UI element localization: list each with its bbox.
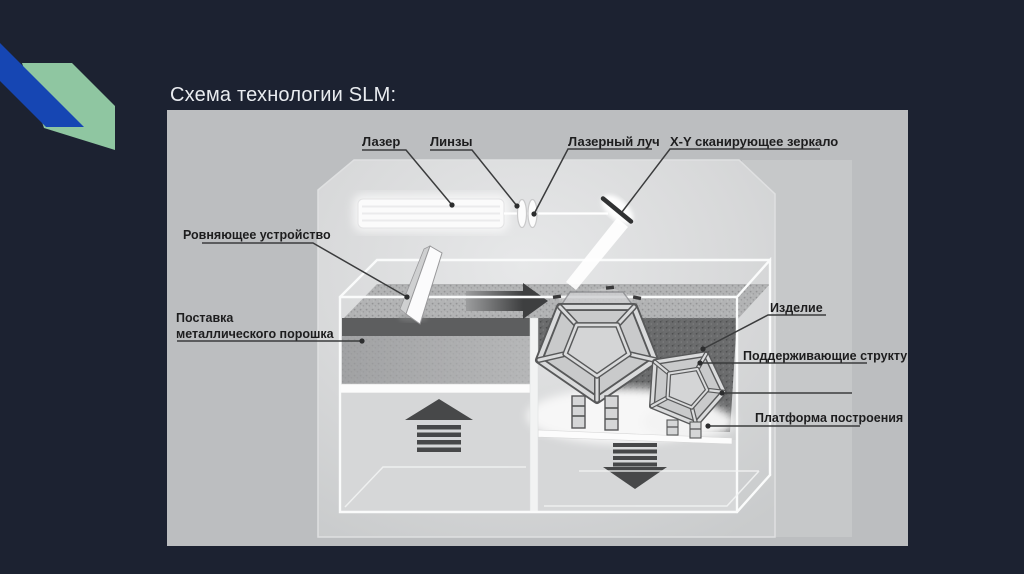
slm-schematic-svg: Лазер Линзы Лазерный луч X-Y сканирующее… — [167, 110, 908, 546]
label-supports: Поддерживающие структуры — [743, 349, 908, 363]
label-lenses: Линзы — [430, 134, 473, 149]
page-title: Схема технологии SLM: — [170, 84, 396, 107]
label-powder-supply-2: металлического порошка — [176, 327, 335, 341]
label-platform: Платформа построения — [755, 411, 903, 425]
powder-front-dark-band — [342, 318, 530, 336]
powder-supply-slab-texture — [342, 336, 530, 384]
label-xy-mirror: X-Y сканирующее зеркало — [670, 134, 838, 149]
label-leveler: Ровняющее устройство — [183, 228, 331, 242]
label-powder-supply-1: Поставка — [176, 311, 234, 325]
corner-decoration — [0, 0, 140, 170]
slide: { "slide": { "title": "Схема технологии … — [0, 0, 1024, 574]
label-product: Изделие — [770, 301, 823, 315]
label-laser: Лазер — [362, 134, 400, 149]
supply-platform — [340, 384, 532, 393]
slm-schematic-image: Лазер Линзы Лазерный луч X-Y сканирующее… — [167, 110, 908, 546]
chamber-divider-wall — [530, 318, 538, 512]
label-laser-beam: Лазерный луч — [568, 134, 660, 149]
lens-1 — [518, 200, 527, 228]
